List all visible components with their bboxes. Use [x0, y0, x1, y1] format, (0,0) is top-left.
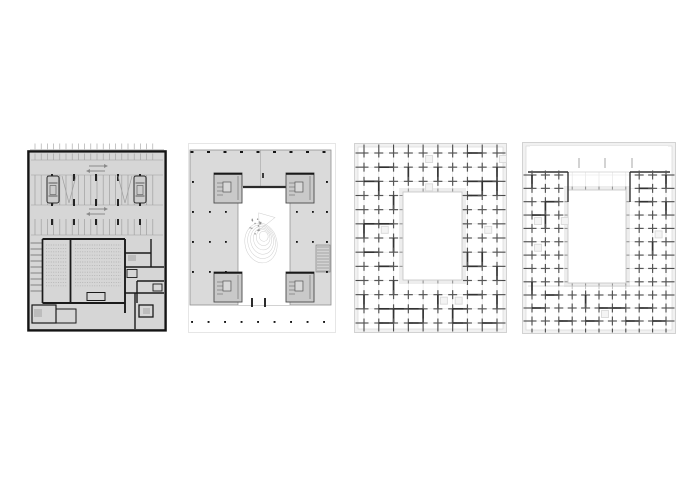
architectural-plans-sheet [0, 0, 700, 495]
floor-plan-typical-upper-level [354, 143, 507, 333]
floor-plan-parking-level [27, 143, 167, 332]
floor-plan-ground-level-courtyard [188, 143, 336, 333]
floor-plan-top-level [522, 142, 676, 334]
